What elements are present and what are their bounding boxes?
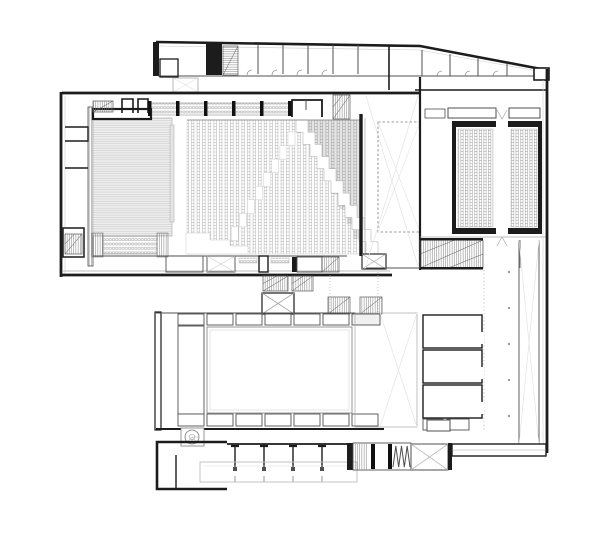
choir-seating bbox=[103, 236, 157, 254]
south-room-b bbox=[297, 257, 322, 272]
studio-door-gap-1 bbox=[479, 332, 484, 344]
concert-hall-floor-plan bbox=[0, 0, 610, 533]
stage-floor bbox=[93, 118, 172, 236]
gallery-divider-3 bbox=[204, 101, 208, 116]
north-slope-door-arc-2 bbox=[465, 71, 470, 76]
gallery-divider-6 bbox=[288, 101, 292, 116]
recital-lobby-room-a bbox=[425, 109, 445, 118]
east-column-dots-1 bbox=[508, 307, 510, 309]
canopy-outline bbox=[200, 462, 357, 482]
recital-bank-b-side-wall bbox=[538, 121, 542, 234]
south-heavy-wall bbox=[347, 443, 353, 470]
north-slope-door-arc-3 bbox=[493, 71, 498, 76]
grand-stair-top-bar bbox=[420, 238, 483, 241]
courtyard-center-room bbox=[207, 327, 352, 413]
courtyard-north-cell-1 bbox=[178, 314, 204, 325]
south-wall-stub bbox=[292, 257, 297, 272]
courtyard-south-cell-5 bbox=[294, 414, 320, 426]
floor-plan-canvas bbox=[0, 0, 610, 533]
gallery-divider-2 bbox=[176, 101, 180, 116]
recital-bank-b-bottom-wall bbox=[508, 228, 542, 234]
courtyard-north-corner-cell bbox=[352, 314, 380, 325]
courtyard-east-strip bbox=[355, 313, 417, 427]
east-column-dots-2 bbox=[508, 343, 510, 345]
studio-room-3 bbox=[423, 385, 482, 418]
recital-bank-b-seats bbox=[511, 129, 537, 227]
colonnade-column-base-1 bbox=[233, 467, 237, 471]
colonnade-column-base-4 bbox=[320, 467, 324, 471]
south-seat-strip-b bbox=[271, 258, 289, 263]
northeast-control-room bbox=[292, 100, 322, 117]
colonnade-column-base-3 bbox=[291, 467, 295, 471]
recital-bank-a-top-wall bbox=[452, 121, 496, 127]
courtyard-north-cell-2 bbox=[207, 314, 233, 325]
recital-bank-a-bottom-wall bbox=[452, 228, 496, 234]
south-lobby bbox=[259, 256, 268, 272]
courtyard-south-cell-4 bbox=[265, 414, 291, 426]
east-column-dots-4 bbox=[508, 415, 510, 417]
courtyard-south-cell-1 bbox=[178, 414, 204, 426]
stage-left-room bbox=[65, 127, 88, 141]
north-core-shaft bbox=[206, 44, 222, 75]
studio-door-gap-3 bbox=[479, 402, 484, 414]
gallery-seating-strip bbox=[150, 103, 291, 115]
grand-stair-bottom-bar bbox=[420, 267, 483, 270]
courtyard-west-cell bbox=[178, 326, 204, 414]
courtyard-south-cell-2 bbox=[207, 414, 233, 426]
recital-bank-a-side-wall bbox=[452, 121, 456, 234]
choir-right-block bbox=[157, 233, 168, 257]
cloakroom-bar-b bbox=[388, 444, 392, 469]
courtyard-south-cell-3 bbox=[236, 414, 262, 426]
cloakroom-bar-a bbox=[371, 444, 375, 469]
recital-bank-a-seats bbox=[458, 129, 493, 227]
gallery-divider-1 bbox=[148, 101, 152, 116]
east-column-dots-3 bbox=[508, 379, 510, 381]
courtyard-west-wall bbox=[155, 312, 161, 430]
courtyard-north-cell-4 bbox=[265, 314, 291, 325]
north-wing-left-room bbox=[160, 59, 178, 77]
stage-edge-strip bbox=[170, 125, 174, 222]
recital-bank-b-top-wall bbox=[508, 121, 542, 127]
courtyard-north-cell-3 bbox=[236, 314, 262, 325]
courtyard-north-cell-6 bbox=[323, 314, 349, 325]
courtyard-north-cell-5 bbox=[294, 314, 320, 325]
recital-door-chevron-top bbox=[497, 110, 507, 119]
choir-left-block bbox=[92, 233, 103, 257]
cloakroom-rack bbox=[393, 446, 410, 467]
courtyard-south-cell-6 bbox=[323, 414, 349, 426]
south-room-a bbox=[166, 256, 203, 272]
north-wing-left-cap-wall bbox=[153, 42, 159, 76]
recital-lobby-room-c bbox=[509, 108, 540, 118]
north-door-arc-4 bbox=[322, 70, 327, 75]
south-small-room bbox=[427, 420, 450, 431]
north-door-arc-3 bbox=[297, 70, 302, 75]
north-door-arc-1 bbox=[247, 70, 252, 75]
recital-door-chevron-bottom bbox=[497, 237, 507, 246]
colonnade-column-base-2 bbox=[262, 467, 266, 471]
gallery-divider-5 bbox=[260, 101, 264, 116]
recital-lobby-room-b bbox=[448, 108, 496, 118]
east-column-dots-0 bbox=[508, 271, 510, 273]
north-door-arc-2 bbox=[272, 70, 277, 75]
south-seat-strip-a bbox=[239, 258, 257, 263]
studio-room-2 bbox=[423, 350, 482, 383]
studio-room-1 bbox=[423, 315, 482, 348]
gallery-divider-4 bbox=[232, 101, 236, 116]
courtyard-south-cell-7 bbox=[352, 414, 378, 426]
studio-door-gap-2 bbox=[479, 367, 484, 379]
cloakroom-hatch bbox=[354, 444, 368, 469]
north-slope-door-arc-1 bbox=[437, 71, 442, 76]
